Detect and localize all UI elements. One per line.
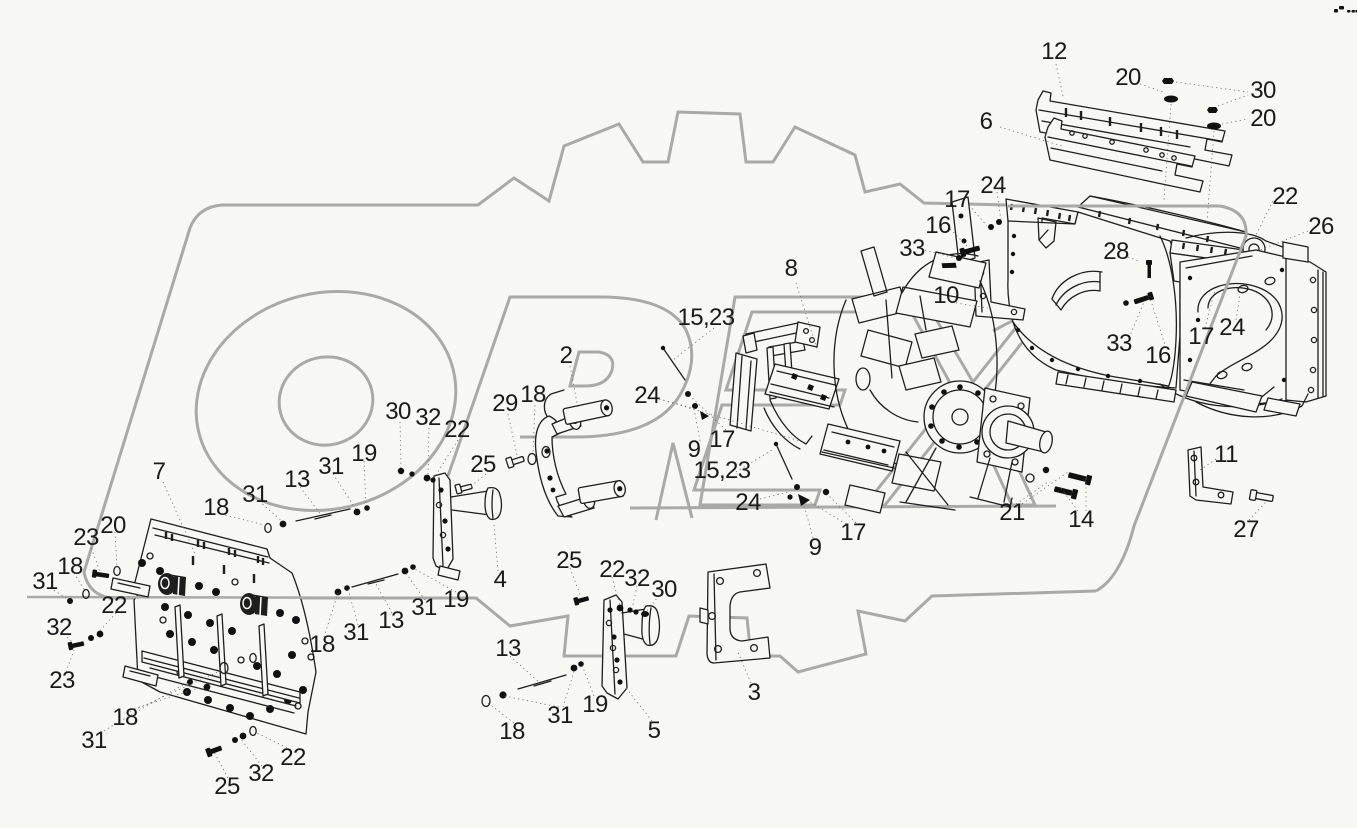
svg-text:13: 13 <box>284 466 310 493</box>
svg-text:15,23: 15,23 <box>677 304 734 331</box>
svg-text:9: 9 <box>809 534 822 561</box>
svg-text:20: 20 <box>1250 105 1276 132</box>
svg-text:25: 25 <box>556 547 582 574</box>
svg-text:21: 21 <box>999 499 1025 526</box>
svg-text:18: 18 <box>520 381 546 408</box>
svg-text:30: 30 <box>651 576 677 603</box>
svg-text:22: 22 <box>101 592 127 619</box>
svg-text:19: 19 <box>582 691 608 718</box>
svg-text:16: 16 <box>1145 342 1171 369</box>
svg-text:18: 18 <box>309 631 335 658</box>
svg-text:18: 18 <box>112 704 138 731</box>
svg-text:33: 33 <box>899 235 925 262</box>
svg-text:22: 22 <box>444 416 470 443</box>
svg-text:13: 13 <box>378 607 404 634</box>
svg-text:17: 17 <box>1188 323 1214 350</box>
svg-text:31: 31 <box>318 453 344 480</box>
svg-text:31: 31 <box>343 619 369 646</box>
svg-text:18: 18 <box>203 494 229 521</box>
svg-text:31: 31 <box>81 727 107 754</box>
svg-text:30: 30 <box>385 398 411 425</box>
svg-text:32: 32 <box>248 760 274 787</box>
svg-text:29: 29 <box>492 390 518 417</box>
svg-text:17: 17 <box>944 186 970 213</box>
svg-text:23: 23 <box>73 524 99 551</box>
svg-text:24: 24 <box>1219 314 1245 341</box>
svg-text:31: 31 <box>411 594 437 621</box>
svg-text:28: 28 <box>1103 238 1129 265</box>
svg-text:22: 22 <box>280 744 306 771</box>
svg-text:5: 5 <box>648 717 661 744</box>
svg-text:10: 10 <box>933 282 959 309</box>
svg-text:30: 30 <box>1250 77 1276 104</box>
svg-text:19: 19 <box>351 440 377 467</box>
svg-text:22: 22 <box>1272 183 1298 210</box>
svg-text:15,23: 15,23 <box>693 457 750 484</box>
svg-text:3: 3 <box>748 679 761 706</box>
svg-text:24: 24 <box>735 489 761 516</box>
svg-text:4: 4 <box>494 566 507 593</box>
svg-text:8: 8 <box>785 255 798 282</box>
svg-text:22: 22 <box>599 556 625 583</box>
svg-text:32: 32 <box>415 404 441 431</box>
svg-text:27: 27 <box>1233 516 1259 543</box>
svg-text:32: 32 <box>624 565 650 592</box>
svg-text:20: 20 <box>100 512 126 539</box>
svg-text:24: 24 <box>980 172 1006 199</box>
svg-text:25: 25 <box>470 451 496 478</box>
svg-text:17: 17 <box>840 519 866 546</box>
svg-text:24: 24 <box>634 382 660 409</box>
svg-text:11: 11 <box>1214 441 1238 468</box>
svg-text:2: 2 <box>560 342 573 369</box>
svg-text:14: 14 <box>1068 506 1094 533</box>
svg-text:23: 23 <box>49 667 75 694</box>
svg-text:33: 33 <box>1106 330 1132 357</box>
svg-text:31: 31 <box>242 481 268 508</box>
svg-text:7: 7 <box>153 458 166 485</box>
svg-text:19: 19 <box>443 586 469 613</box>
svg-text:18: 18 <box>57 553 83 580</box>
svg-text:32: 32 <box>46 614 72 641</box>
svg-text:16: 16 <box>925 212 951 239</box>
svg-text:20: 20 <box>1115 64 1141 91</box>
svg-text:18: 18 <box>499 718 525 745</box>
svg-text:26: 26 <box>1308 213 1334 240</box>
svg-text:25: 25 <box>214 773 240 800</box>
svg-text:12: 12 <box>1041 38 1067 65</box>
svg-text:31: 31 <box>32 568 58 595</box>
svg-text:13: 13 <box>495 635 521 662</box>
svg-text:6: 6 <box>980 108 993 135</box>
svg-text:17: 17 <box>709 426 735 453</box>
svg-text:31: 31 <box>547 702 573 729</box>
